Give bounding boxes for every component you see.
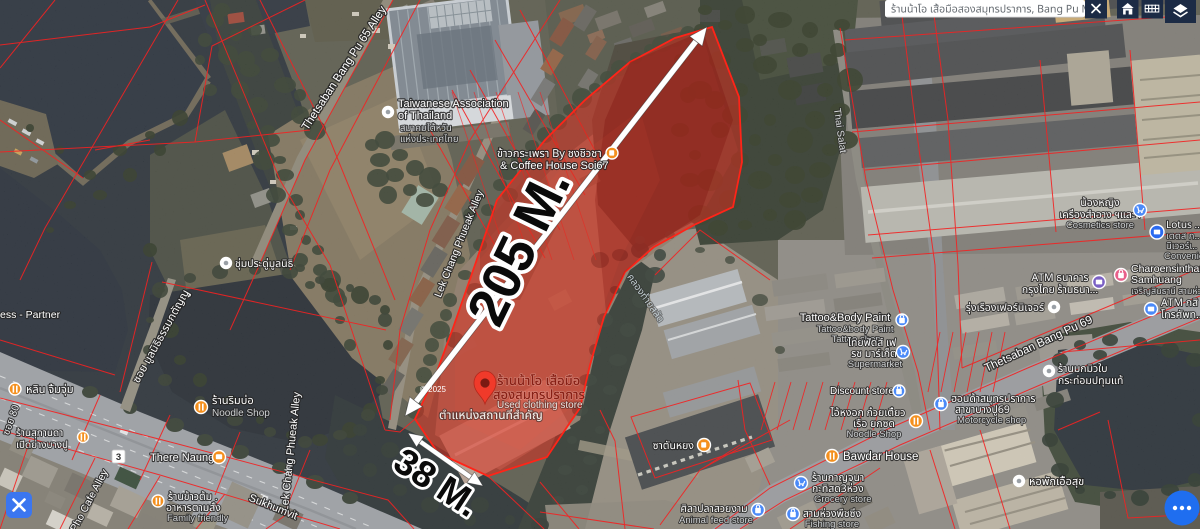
svg-text:ess - Partner: ess - Partner [0, 309, 61, 321]
svg-text:Bawdar House: Bawdar House [843, 451, 918, 463]
svg-text:There Naung: There Naung [150, 452, 214, 464]
svg-text:Fishing store: Fishing store [805, 519, 859, 529]
svg-text:Grocery store: Grocery store [814, 494, 872, 505]
svg-text:Cosmetics store: Cosmetics store [1066, 220, 1134, 231]
svg-text:Noodle Shop: Noodle Shop [847, 429, 902, 440]
svg-text:3: 3 [116, 452, 121, 463]
svg-text:Convenien..: Convenien.. [1164, 251, 1200, 262]
svg-text:Supermarket: Supermarket [848, 359, 903, 370]
svg-text:Tattoo&Body Paint: Tattoo&Body Paint [800, 312, 891, 324]
svg-text:Discount store: Discount store [830, 386, 894, 397]
svg-text:Motorcycle shop: Motorcycle shop [957, 415, 1026, 426]
svg-text:Taiwanese Association: Taiwanese Association [398, 98, 509, 110]
svg-text:& Coffee House Soi67: & Coffee House Soi67 [500, 160, 609, 172]
svg-text:Noodle Shop: Noodle Shop [212, 408, 270, 419]
svg-text:of Thailand: of Thailand [398, 110, 452, 122]
svg-text:Mu: Mu [282, 464, 292, 476]
svg-text:Family friendly: Family friendly [167, 513, 228, 524]
svg-text:Samhuang: Samhuang [1131, 274, 1182, 286]
svg-text:© 2025: © 2025 [420, 385, 446, 394]
svg-text:Animal feed store: Animal feed store [679, 515, 753, 526]
